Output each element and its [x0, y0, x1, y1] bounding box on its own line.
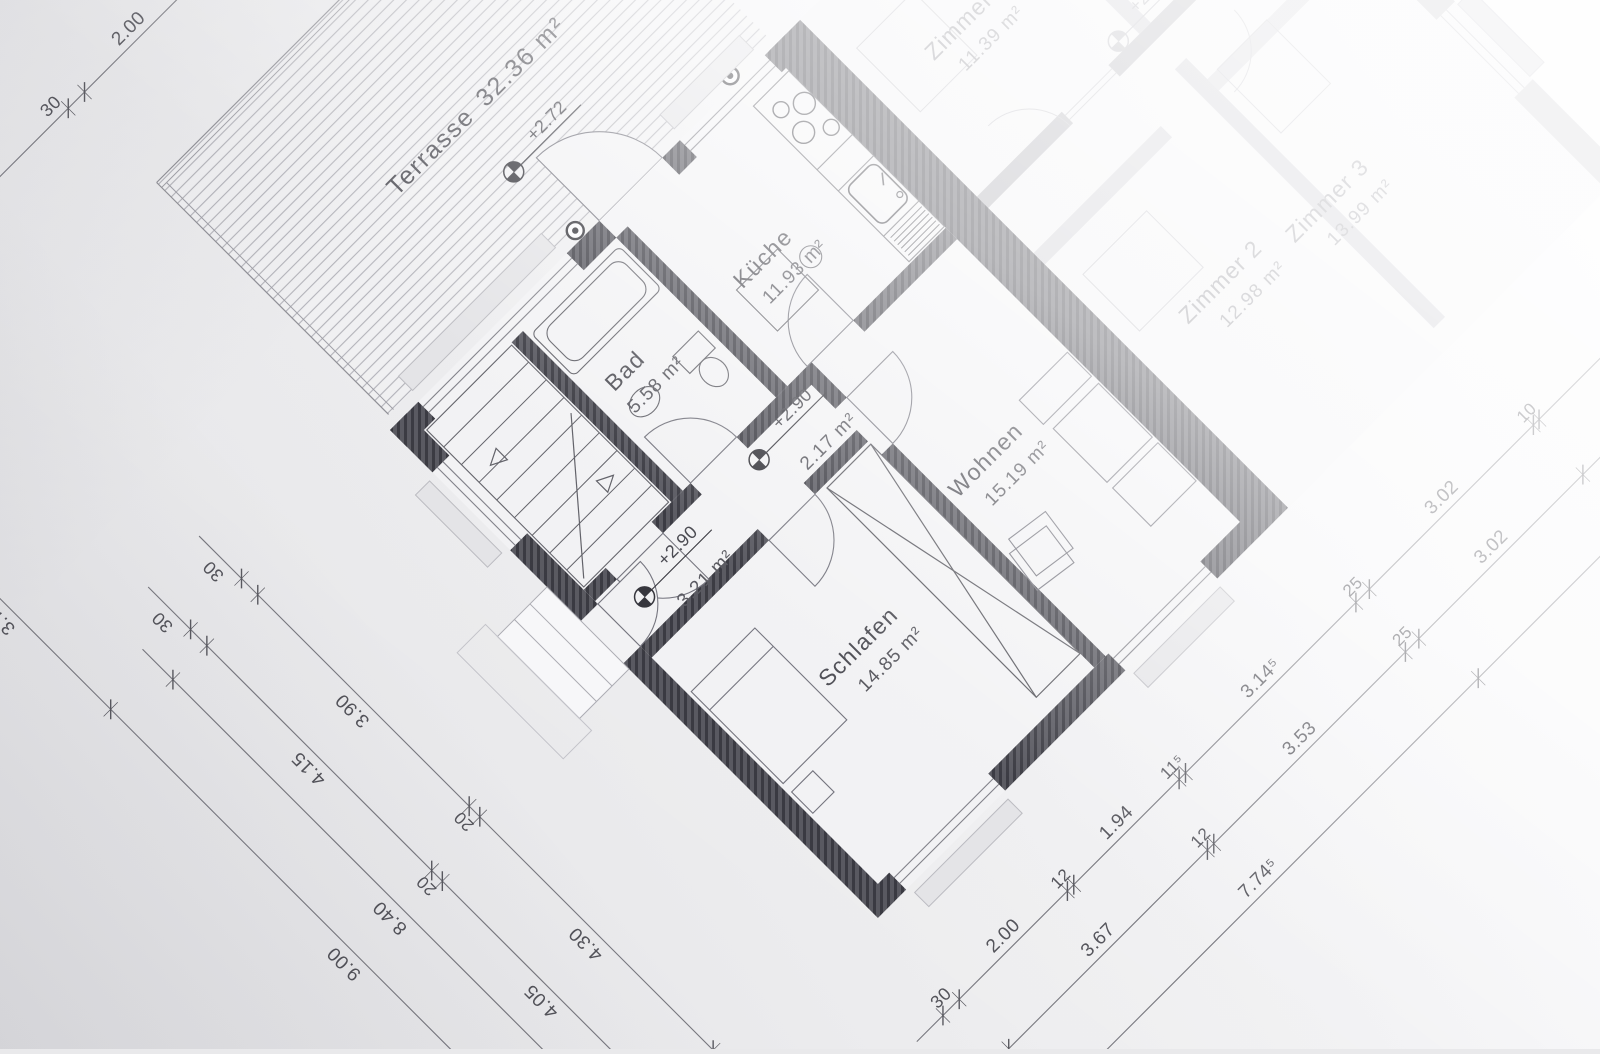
vignette-top-left	[0, 0, 1600, 1049]
floor-plan-photo: Terrasse32.36 m² Küche 11.93 m² Bad 5.58…	[0, 0, 1600, 1049]
